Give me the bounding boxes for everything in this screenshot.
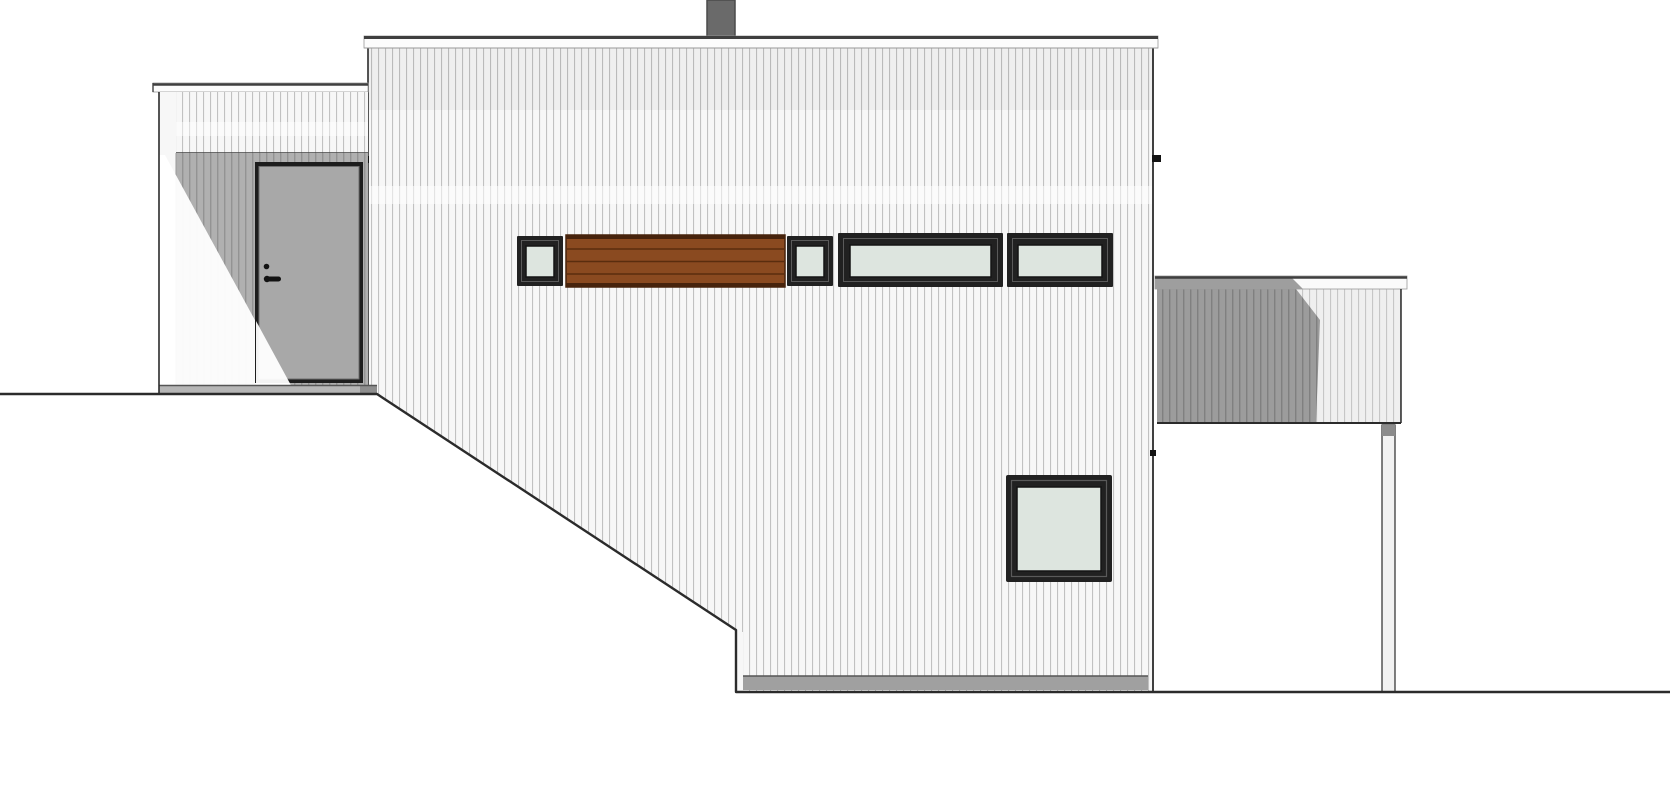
window-band (517, 233, 1113, 287)
small-window-a (517, 236, 563, 286)
terrace-post-shaft (1382, 425, 1395, 692)
ribbon-window-d (1007, 233, 1113, 287)
wall-fixture-right-lower (1150, 450, 1156, 456)
wood-panel-top-edge (566, 235, 785, 239)
chimney (707, 0, 735, 38)
wall-fixture-right-upper (1152, 155, 1161, 162)
house-side-elevation-drawing (0, 0, 1670, 800)
small-window-a-glass (526, 246, 554, 277)
terrace-post (1382, 425, 1395, 692)
terrace-siding-shaded (1157, 289, 1320, 423)
terrace-post-cap (1382, 425, 1395, 436)
wood-panel-bottom-edge (566, 283, 785, 287)
porch-highlight-band (159, 122, 368, 136)
ribbon-window-c-glass (850, 245, 991, 277)
square-window (1006, 475, 1112, 582)
elevation-canvas (0, 0, 1670, 800)
small-window-b-glass (796, 246, 824, 277)
main-base-strip (743, 676, 1148, 690)
chimney-stack (707, 0, 735, 38)
wall-highlight-band (368, 186, 1153, 204)
entrance-porch (153, 83, 377, 394)
entry-door (255, 162, 363, 389)
wall-upper-tint (368, 48, 1153, 110)
porch-base-strip (159, 385, 377, 394)
square-window-glass (1017, 487, 1101, 571)
ribbon-window-c (838, 233, 1003, 287)
door-peephole (264, 264, 270, 270)
ribbon-window-d-glass (1018, 245, 1102, 277)
door-handle-lever (265, 277, 281, 282)
small-window-b (787, 236, 833, 286)
porch-base-strip-shadow (360, 385, 377, 394)
lower-corner-board (737, 632, 743, 691)
door-leaf (259, 167, 359, 380)
wood-slat-panel (566, 235, 785, 287)
